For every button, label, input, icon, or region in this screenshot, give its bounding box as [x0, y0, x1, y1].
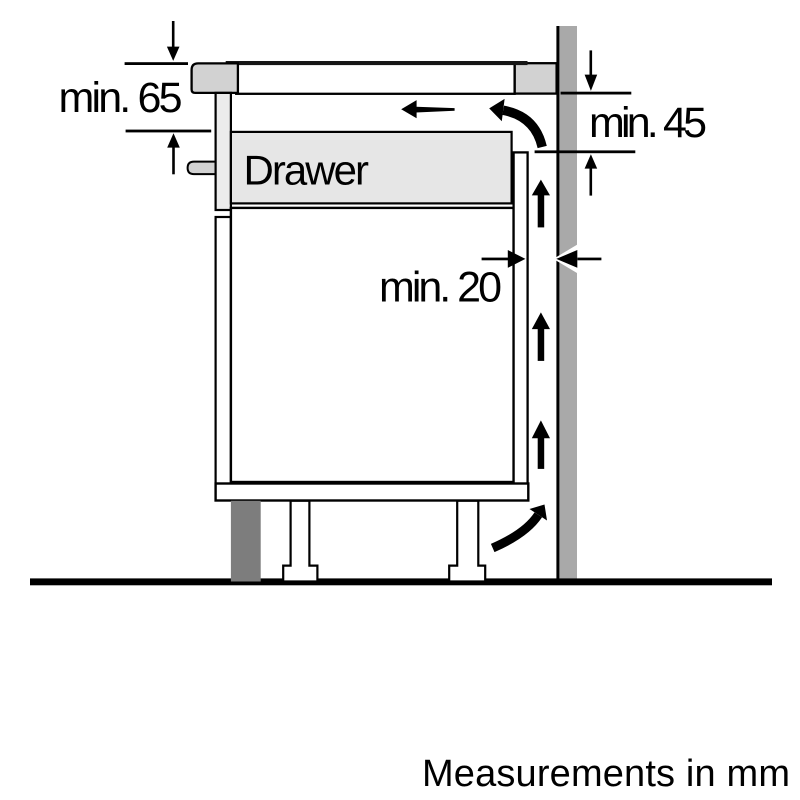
svg-text:Measurements in mm: Measurements in mm: [422, 753, 790, 795]
svg-text:Drawer: Drawer: [244, 147, 370, 194]
svg-text:min. 65: min. 65: [59, 74, 183, 122]
svg-text:min. 45: min. 45: [589, 99, 707, 147]
svg-text:min. 20: min. 20: [379, 264, 502, 312]
